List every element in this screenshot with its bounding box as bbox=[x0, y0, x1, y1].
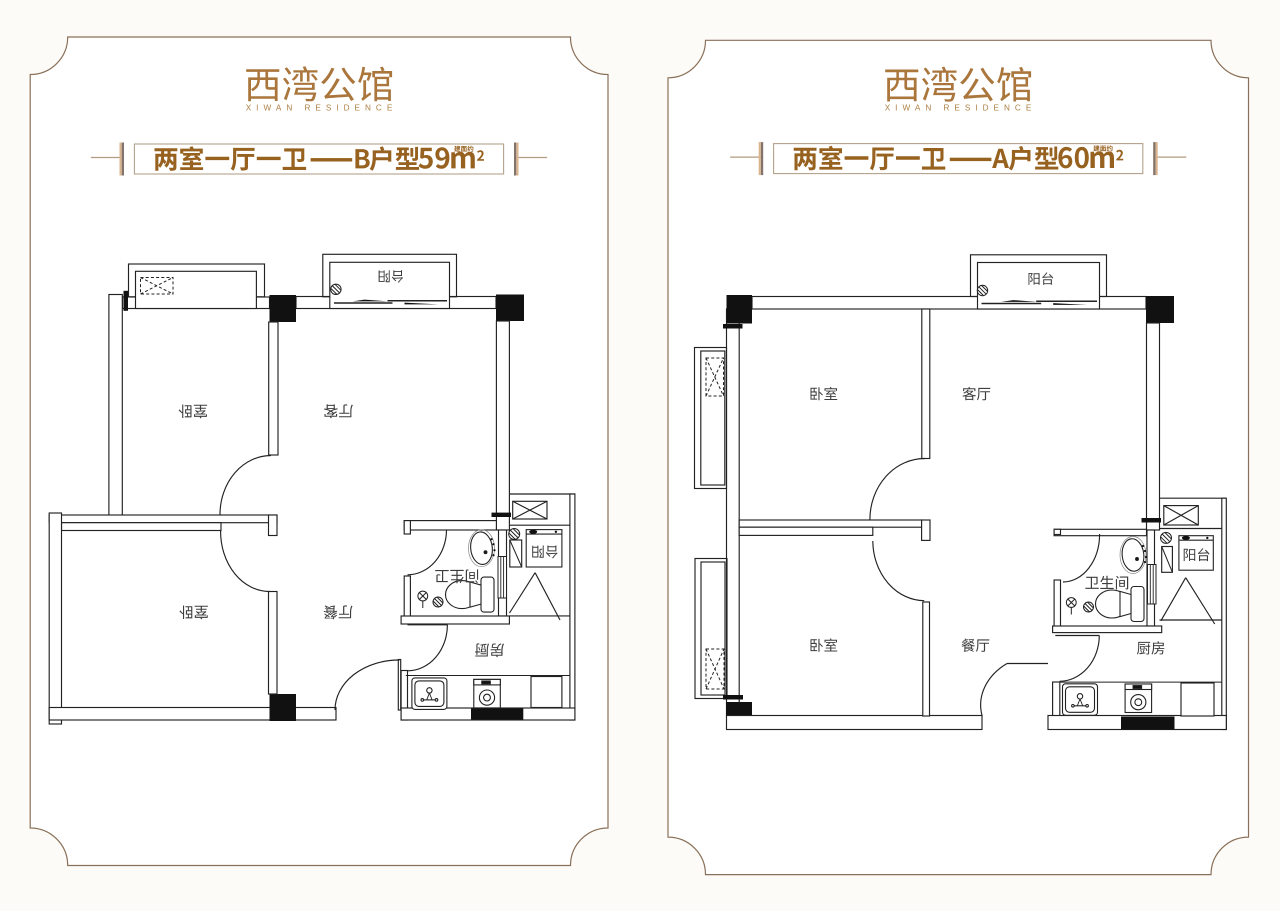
svg-text:XIWAN RESIDENCE: XIWAN RESIDENCE bbox=[246, 103, 398, 112]
svg-text:XIWAN RESIDENCE: XIWAN RESIDENCE bbox=[885, 104, 1037, 113]
